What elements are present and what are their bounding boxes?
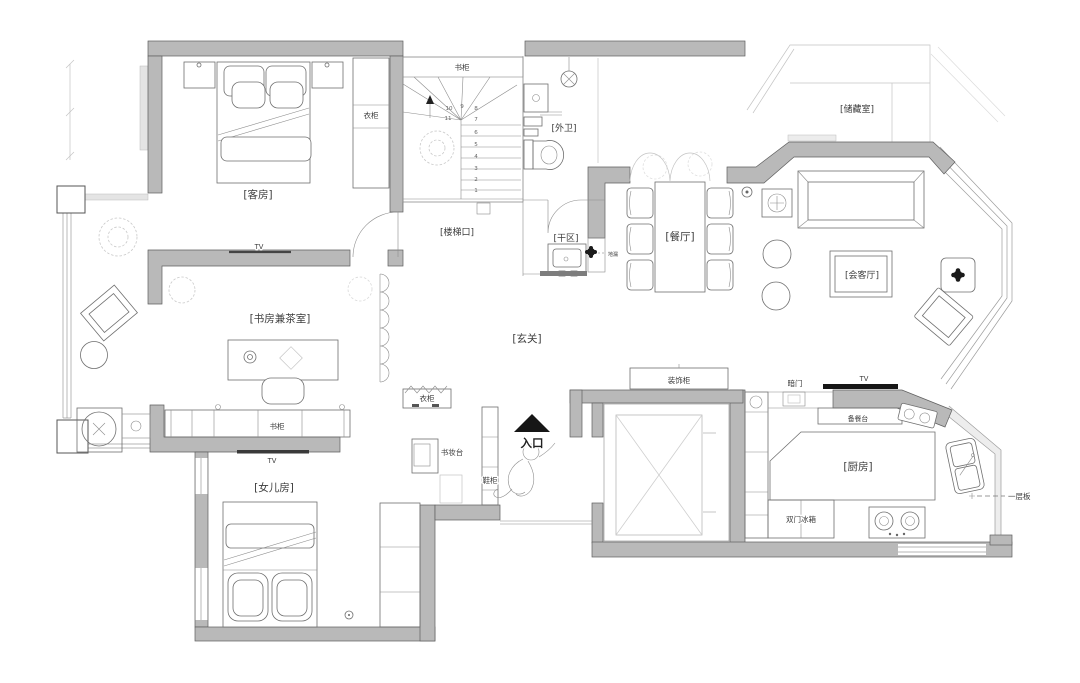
round-stool xyxy=(763,240,791,268)
study-bookcase xyxy=(165,405,350,438)
stair-num: 4 xyxy=(474,154,478,160)
stair-num: 5 xyxy=(474,142,478,148)
study-furniture xyxy=(77,274,389,454)
label-stair-bookcase: 书柜 xyxy=(455,62,470,72)
label-shoe-cabinet: 鞋柜 xyxy=(483,475,498,485)
label-study-tv: TV xyxy=(267,457,277,465)
stair-num: 7 xyxy=(474,117,478,123)
guest-bed xyxy=(217,62,311,183)
label-entrance: 入口 xyxy=(521,436,544,450)
stair-num: 8 xyxy=(474,106,478,112)
stair-num: 6 xyxy=(474,130,478,136)
sofa xyxy=(798,171,924,228)
label-vanity-desk: 书妆台 xyxy=(441,447,464,457)
guest-room-furniture xyxy=(184,58,398,257)
room-label-outer-bathroom: [外卫] xyxy=(551,122,576,134)
bathroom-door-arc xyxy=(548,200,581,233)
scallop-partition xyxy=(380,274,389,382)
floor-plan-page: 1 2 3 4 5 6 7 8 9 10 11 xyxy=(0,0,1080,683)
wash-basin xyxy=(553,249,581,267)
hidden-door xyxy=(783,392,805,406)
label-drain-note: 地漏 xyxy=(608,251,618,258)
tall-cabinets xyxy=(745,392,768,538)
study-desk xyxy=(228,340,338,404)
room-label-reception-room: [会客厅] xyxy=(845,269,879,281)
staircase: 1 2 3 4 5 6 7 8 9 10 11 xyxy=(403,57,523,214)
label-guest-wardrobe: 衣柜 xyxy=(364,110,379,120)
plant-side-table xyxy=(941,258,975,292)
plant-pot xyxy=(585,246,597,258)
stair-num: 3 xyxy=(474,166,478,172)
stair-num: 10 xyxy=(445,106,453,112)
armchair xyxy=(914,287,974,346)
stair-num: 1 xyxy=(474,188,478,194)
stair-num: 2 xyxy=(474,177,478,183)
room-label-foyer: [玄关] xyxy=(512,332,541,345)
label-living-tv: TV xyxy=(859,375,869,383)
side-counter xyxy=(122,414,150,438)
dimension-line xyxy=(66,60,74,160)
plants xyxy=(99,131,712,303)
window-sill xyxy=(788,135,836,141)
label-prep-counter: 备餐台 xyxy=(848,414,869,423)
toilet xyxy=(524,140,564,170)
vanity-counter xyxy=(548,244,586,274)
daughter-bed xyxy=(223,502,317,627)
living-tv-bar xyxy=(823,384,898,389)
round-stool xyxy=(762,282,790,310)
room-label-storage-room: [储藏室] xyxy=(840,103,874,115)
stair-num: 9 xyxy=(460,104,464,110)
round-table xyxy=(81,342,108,369)
room-label-stair-opening: [楼梯口] xyxy=(440,226,474,238)
armchair xyxy=(81,285,138,341)
label-study-bookcase: 书柜 xyxy=(270,421,285,431)
room-label-study-tea-room: [书房兼茶室] xyxy=(250,312,311,325)
nightstand xyxy=(184,62,215,88)
folding-door-arcs xyxy=(630,153,710,181)
label-decor-cabinet: 装饰柜 xyxy=(668,375,691,385)
stair-num: 11 xyxy=(444,116,452,122)
bay-pillar xyxy=(57,186,85,213)
label-hidden-door: 暗门 xyxy=(788,378,803,388)
nightstand xyxy=(312,62,343,88)
living-bay-glazing xyxy=(930,147,1012,389)
daughter-room-furniture xyxy=(223,502,420,627)
stair-direction-arrow xyxy=(426,95,434,104)
left-bay-windows xyxy=(57,60,150,453)
square-side-table xyxy=(762,189,792,217)
guest-window-hatch xyxy=(140,66,148,150)
guest-wardrobe xyxy=(353,58,389,188)
label-foyer-wardrobe: 衣柜 xyxy=(420,393,435,403)
study-tv-bar xyxy=(237,450,309,454)
hob xyxy=(869,507,925,538)
entrance-arrow xyxy=(514,414,550,432)
sink-counter xyxy=(945,437,985,494)
outer-bathroom xyxy=(524,57,581,233)
label-guest-tv: TV xyxy=(254,243,264,251)
label-shelf-board: 一层板 xyxy=(1008,491,1031,501)
daughter-wardrobe xyxy=(380,503,420,627)
floor-plan-svg: 1 2 3 4 5 6 7 8 9 10 11 xyxy=(0,0,1080,683)
label-fridge: 双门冰箱 xyxy=(786,514,816,524)
shower-tray xyxy=(524,84,548,112)
room-label-guest-room: [客房] xyxy=(243,188,272,201)
counter-edge xyxy=(540,271,587,276)
room-label-kitchen: [厨房] xyxy=(843,460,872,473)
room-label-dry-area: [干区] xyxy=(553,233,578,244)
storage-room-outline xyxy=(747,45,1005,142)
person-sketch xyxy=(494,443,555,498)
desk-chair xyxy=(262,378,304,404)
room-label-daughter-room: [女儿房] xyxy=(254,481,294,494)
room-label-dining-room: [餐厅] xyxy=(665,230,694,243)
kitchen-furniture xyxy=(745,392,1005,538)
